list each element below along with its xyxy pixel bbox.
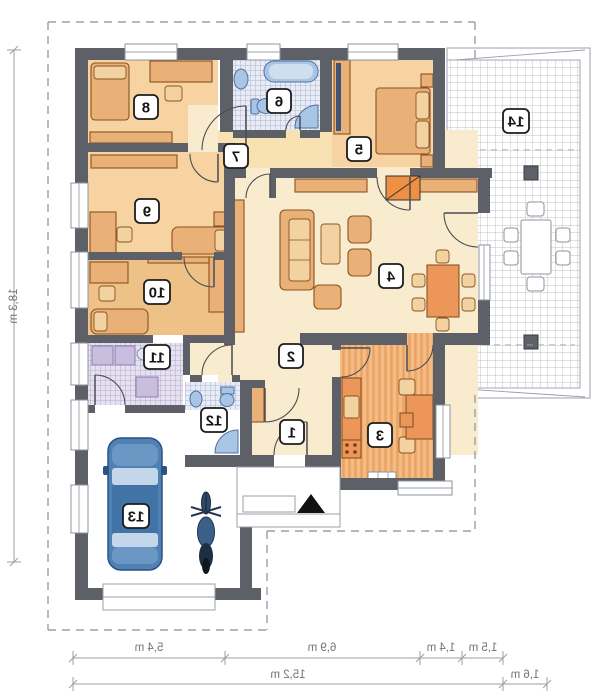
fireplace — [386, 176, 420, 200]
dim-label-height: 18,3 m — [8, 288, 20, 323]
terrace-post — [524, 166, 538, 180]
chair — [165, 86, 182, 101]
boiler — [136, 377, 158, 397]
room-label-6: 6 — [267, 89, 291, 113]
armchair — [348, 249, 371, 276]
window — [71, 400, 88, 450]
window — [71, 252, 88, 308]
desk — [90, 262, 128, 283]
svg-text:6: 6 — [275, 94, 283, 111]
garage-door — [103, 584, 215, 610]
room-label-2: 2 — [279, 344, 303, 368]
shelf — [295, 179, 367, 192]
svg-text:4: 4 — [386, 269, 395, 286]
dim-label: 1,4 m — [427, 642, 456, 654]
svg-text:14: 14 — [507, 114, 524, 131]
dim-label: 1,5 m — [469, 642, 498, 654]
dimension-bottom-row1: 5,4 m 6,9 m 1,4 m 1,5 m — [69, 642, 507, 665]
floor-plan-drawing: 18,3 m 5,4 m 6,9 m 1,4 m 1,5 m 15,2 m 1,… — [0, 0, 601, 700]
room-label-3: 3 — [368, 423, 392, 447]
svg-text:3: 3 — [376, 428, 384, 445]
desk — [150, 61, 212, 82]
washer — [92, 346, 113, 365]
dim-label: 5,4 m — [135, 642, 164, 654]
terrace-window — [479, 245, 490, 300]
nightstand — [421, 155, 433, 167]
chair — [436, 318, 449, 331]
svg-text:11: 11 — [149, 350, 165, 367]
room-label-14: 14 — [503, 109, 529, 133]
dimension-bottom-row2: 15,2 m 1,6 m — [69, 669, 551, 691]
coffee-table — [321, 224, 340, 264]
window — [71, 343, 88, 385]
window — [71, 485, 88, 533]
svg-text:8: 8 — [142, 100, 150, 117]
chair — [436, 250, 449, 263]
svg-text:1: 1 — [288, 425, 296, 442]
window — [398, 481, 452, 495]
toilet — [220, 394, 234, 407]
chair — [399, 379, 415, 395]
room-label-12: 12 — [201, 408, 227, 432]
svg-text:5: 5 — [355, 142, 363, 159]
room-label-7: 7 — [224, 144, 248, 168]
svg-text:10: 10 — [149, 285, 166, 302]
room-label-10: 10 — [144, 280, 170, 304]
svg-text:2: 2 — [287, 349, 295, 366]
room-label-9: 9 — [135, 199, 159, 223]
room-label-5: 5 — [347, 137, 371, 161]
dim-label: 1,6 m — [511, 669, 540, 681]
svg-text:12: 12 — [206, 413, 223, 430]
dresser — [90, 132, 172, 143]
dryer — [115, 346, 135, 365]
chair — [412, 274, 425, 287]
room-label-8: 8 — [134, 95, 158, 119]
dimension-left: 18,3 m — [7, 46, 21, 566]
svg-text:9: 9 — [143, 204, 151, 221]
window — [348, 44, 398, 60]
room-label-1: 1 — [280, 420, 304, 444]
stove — [342, 440, 361, 458]
svg-text:7: 7 — [232, 149, 240, 166]
chair — [117, 227, 132, 242]
chair — [99, 286, 115, 301]
chair — [462, 274, 475, 287]
window — [125, 44, 177, 60]
window — [247, 44, 280, 60]
sink — [344, 396, 359, 418]
entrance-porch — [237, 467, 340, 527]
room-label-4: 4 — [379, 264, 403, 288]
terrace-post — [524, 335, 538, 349]
dim-label: 15,2 m — [270, 669, 305, 681]
room-label-13: 13 — [123, 504, 149, 528]
wardrobe — [91, 155, 177, 168]
chair — [412, 298, 425, 311]
desk — [90, 212, 116, 256]
armchair — [348, 216, 371, 243]
chair — [462, 298, 475, 311]
washbasin — [190, 391, 202, 407]
shelf — [417, 179, 477, 192]
room-label-11: 11 — [144, 345, 170, 369]
dim-label: 6,9 m — [308, 642, 337, 654]
washbasin — [234, 69, 248, 89]
dining-table — [427, 265, 459, 317]
svg-text:13: 13 — [128, 509, 145, 526]
floor-plan-page: 18,3 m 5,4 m 6,9 m 1,4 m 1,5 m 15,2 m 1,… — [0, 0, 601, 700]
armchair — [314, 285, 341, 309]
window — [436, 405, 450, 458]
nightstand — [421, 74, 433, 87]
window — [71, 183, 88, 228]
